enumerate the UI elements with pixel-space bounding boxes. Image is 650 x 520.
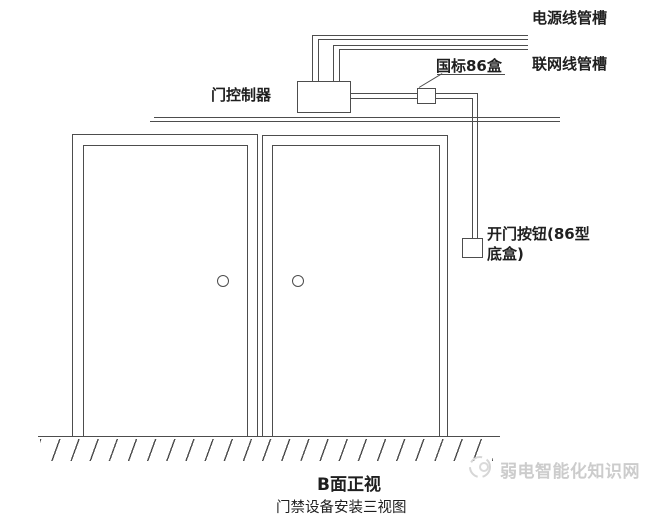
watermark-logo-icon [466,453,494,485]
left-door-knob [217,275,229,287]
ground-hatching [40,439,493,461]
gb86-junction-box [417,88,436,104]
controller-to-box-wire-bottom [351,98,418,99]
exit-button-label-line2: 底盒) [487,244,590,264]
wall-beam-line-bottom [150,121,560,122]
exit-button-box [462,238,483,258]
view-title: B面正视 [317,470,381,495]
door-controller-box [297,81,351,113]
power-conduit-label: 电源线管槽 [532,8,607,28]
left-door-leaf [83,145,248,437]
exit-button-label-line1: 开门按钮(86型 [487,224,590,244]
ground-line [38,436,500,437]
watermark-text: 弱电智能化知识网 [500,457,640,482]
right-door-knob [292,275,304,287]
right-door-leaf [272,145,440,437]
network-conduit-label: 联网线管槽 [532,54,607,74]
wall-beam-line-top [154,117,560,118]
watermark: 弱电智能化知识网 [466,453,640,485]
gb86-box-label: 国标86盒 [436,56,502,76]
diagram-caption: 门禁设备安装三视图 [276,496,407,517]
exit-button-label: 开门按钮(86型 底盒) [487,224,590,265]
controller-to-box-wire-top [351,93,418,94]
door-controller-label: 门控制器 [211,85,271,105]
installation-diagram: 电源线管槽 联网线管槽 国标86盒 门控制器 开门按钮(86型 底盒) B面正视… [0,0,650,520]
